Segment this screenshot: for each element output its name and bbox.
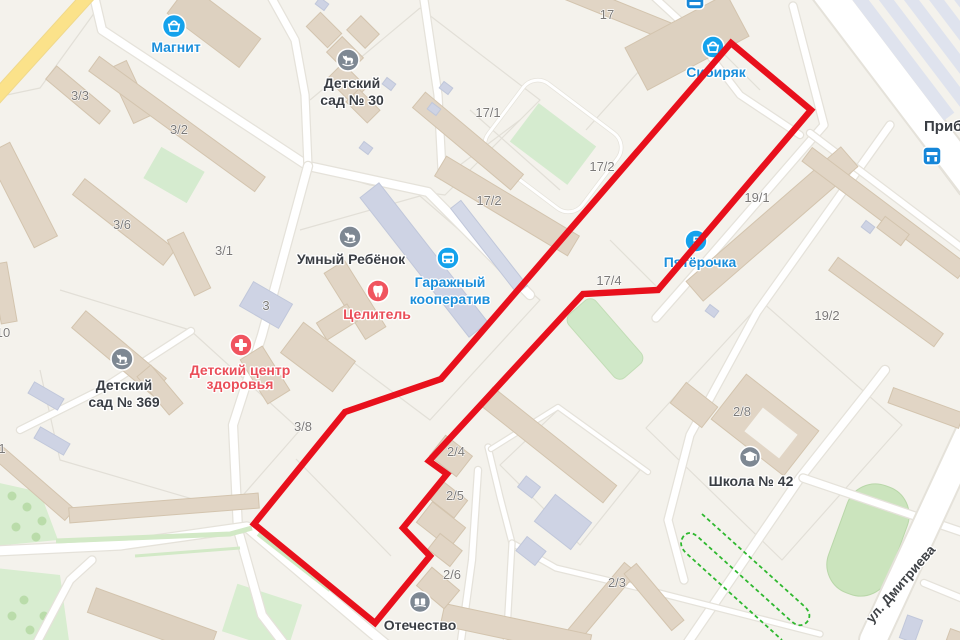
svg-text:3/2: 3/2 [170,122,188,137]
svg-text:сад № 30: сад № 30 [320,92,384,108]
svg-text:кооператив: кооператив [410,291,491,307]
svg-text:2/6: 2/6 [443,567,461,582]
svg-text:2/8: 2/8 [733,404,751,419]
svg-text:3/3: 3/3 [71,88,89,103]
svg-text:17/1: 17/1 [475,105,500,120]
svg-text:2/3: 2/3 [608,575,626,590]
svg-text:17/4: 17/4 [596,273,621,288]
svg-text:Приб: Приб [924,118,960,135]
svg-text:3/1: 3/1 [215,243,233,258]
svg-text:сад № 369: сад № 369 [88,394,160,410]
svg-text:Детский: Детский [96,377,152,393]
svg-text:Школа № 42: Школа № 42 [709,473,794,489]
svg-text:17/2: 17/2 [476,193,501,208]
svg-text:1: 1 [0,441,6,456]
svg-text:17/2: 17/2 [589,159,614,174]
svg-text:Отечество: Отечество [384,617,457,633]
svg-text:Детский: Детский [324,75,380,91]
svg-text:Гаражный: Гаражный [415,274,486,290]
svg-text:Целитель: Целитель [343,306,411,322]
svg-text:10: 10 [0,325,10,340]
svg-text:здоровья: здоровья [207,376,274,392]
svg-text:19/1: 19/1 [744,190,769,205]
svg-text:3/8: 3/8 [294,419,312,434]
svg-text:19/2: 19/2 [814,308,839,323]
svg-text:3: 3 [262,298,269,313]
svg-text:2/4: 2/4 [447,444,465,459]
svg-text:Магнит: Магнит [151,39,201,55]
svg-text:3/6: 3/6 [113,217,131,232]
svg-text:Умный Ребёнок: Умный Ребёнок [297,251,406,267]
svg-text:2/5: 2/5 [446,488,464,503]
svg-text:17: 17 [600,7,614,22]
svg-text:Сибиряк: Сибиряк [686,64,747,80]
